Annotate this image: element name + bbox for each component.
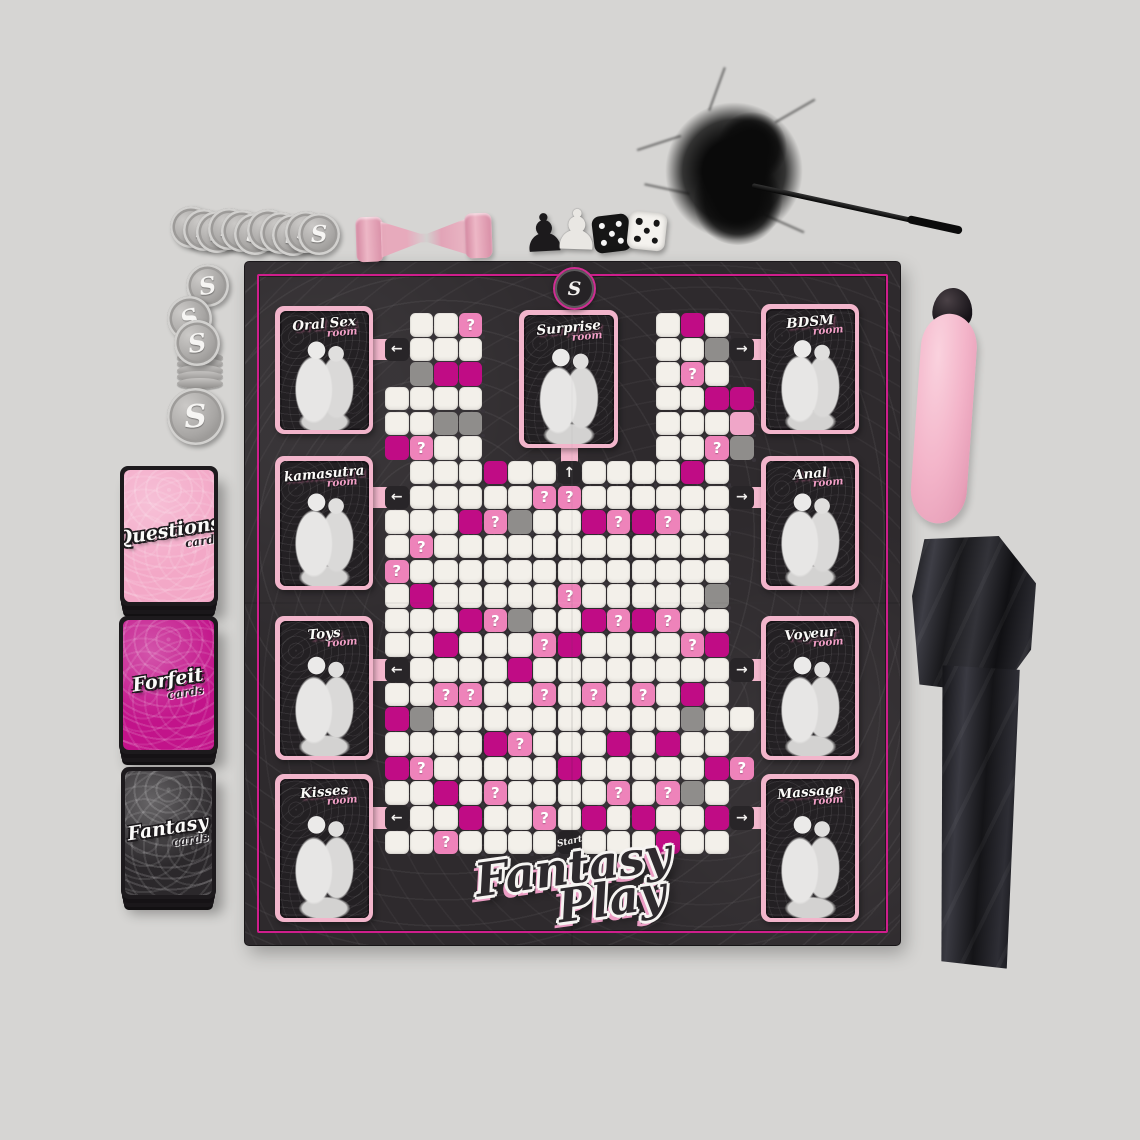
deck-questions: Questionscards: [120, 466, 218, 606]
grid-cell: [434, 757, 458, 781]
grid-cell: [656, 584, 680, 608]
grid-cell: [656, 633, 680, 657]
grid-cell: [632, 584, 656, 608]
token-stack-coin: [177, 378, 223, 389]
grid-cell: [459, 757, 483, 781]
die-pip: [636, 218, 643, 225]
question-cell: ?: [730, 757, 754, 781]
grid-cell: [410, 658, 434, 682]
grid-cell: [410, 387, 434, 411]
arrow-cell: ←: [385, 486, 409, 510]
grid-cell: [434, 486, 458, 510]
grid-cell: [385, 707, 409, 731]
grid-cell: [434, 510, 458, 534]
grid-cell: [607, 732, 631, 756]
grid-cell: [385, 609, 409, 633]
grid-cell: [459, 510, 483, 534]
grid-cell: [656, 461, 680, 485]
grid-cell: [705, 683, 729, 707]
room-card-face: Voyeurroom: [766, 621, 855, 756]
arrow-cell: ←: [385, 658, 409, 682]
grid-cell: [607, 683, 631, 707]
grid-cell: [582, 707, 606, 731]
grid-cell: [582, 633, 606, 657]
hourglass-cap-right: [464, 213, 493, 259]
room-card-face: kamasutraroom: [280, 461, 369, 586]
room-card-surprise: Surpriseroom: [519, 310, 618, 448]
grid-cell: [582, 757, 606, 781]
grid-cell: [632, 486, 656, 510]
grid-cell: [508, 806, 532, 830]
grid-cell: [607, 584, 631, 608]
grid-cell: [385, 757, 409, 781]
grid-cell: [558, 633, 582, 657]
grid-cell: [705, 362, 729, 386]
grid-cell: [410, 633, 434, 657]
grid-cell: [533, 461, 557, 485]
board-fold-horizontal: [245, 602, 900, 604]
grid-cell: [533, 781, 557, 805]
grid-cell: [632, 757, 656, 781]
grid-cell: [656, 338, 680, 362]
deck-back: Questionscards: [124, 470, 214, 602]
grid-cell: [582, 609, 606, 633]
grid-cell: [681, 806, 705, 830]
die-pip: [634, 235, 641, 242]
grid-cell: [656, 560, 680, 584]
question-cell: ?: [607, 510, 631, 534]
grid-cell: [410, 584, 434, 608]
grid-cell: [434, 535, 458, 559]
grid-cell: [632, 510, 656, 534]
grid-cell: [459, 461, 483, 485]
grid-cell: [681, 535, 705, 559]
question-cell: ?: [632, 683, 656, 707]
grid-cell: [607, 806, 631, 830]
scene: S Oral SexroomkamasutraroomToysroomKisse…: [0, 0, 1140, 1140]
deck-label: Questionscards: [124, 511, 214, 560]
question-cell: ?: [484, 609, 508, 633]
grid-cell: [607, 658, 631, 682]
grid-cell: [508, 781, 532, 805]
die-pip: [651, 237, 658, 244]
grid-cell: [484, 683, 508, 707]
room-card-face: Oral Sexroom: [280, 311, 369, 430]
grid-cell: [533, 707, 557, 731]
grid-cell: [434, 732, 458, 756]
question-cell: ?: [533, 633, 557, 657]
feather-tickler-puff: [664, 102, 806, 242]
grid-cell: [681, 584, 705, 608]
question-cell: ?: [484, 510, 508, 534]
grid-cell: [508, 486, 532, 510]
grid-cell: [434, 781, 458, 805]
grid-cell: [730, 707, 754, 731]
room-card-voyeur: Voyeurroom: [761, 616, 859, 760]
grid-cell: [607, 633, 631, 657]
arrow-cell: ←: [385, 338, 409, 362]
token-letter: S: [186, 327, 208, 359]
room-card-massage: Massageroom: [761, 774, 859, 922]
token-letter: S: [310, 220, 328, 248]
grid-cell: [681, 313, 705, 337]
grid-cell: [582, 781, 606, 805]
grid-cell: [434, 461, 458, 485]
grid-cell: [434, 560, 458, 584]
grid-cell: [705, 313, 729, 337]
grid-cell: [705, 732, 729, 756]
grid-cell: [410, 683, 434, 707]
question-cell: ?: [434, 831, 458, 855]
grid-cell: [434, 338, 458, 362]
grid-cell: [656, 757, 680, 781]
grid-cell: [582, 486, 606, 510]
grid-cell: [705, 757, 729, 781]
grid-cell: [484, 707, 508, 731]
grid-cell: [632, 781, 656, 805]
grid-cell: [681, 781, 705, 805]
grid-cell: [632, 732, 656, 756]
grid-cell: [656, 658, 680, 682]
deck-forfeit: Forfeitcards: [119, 616, 218, 754]
grid-cell: [730, 436, 754, 460]
grid-cell: [459, 436, 483, 460]
grid-cell: [632, 461, 656, 485]
grid-cell: [705, 584, 729, 608]
arrow-cell: →: [730, 486, 754, 510]
vibrator: [908, 286, 982, 527]
room-card-bdsm: BDSMroom: [761, 304, 859, 434]
token-letter: S: [197, 270, 219, 301]
grid-cell: [705, 412, 729, 436]
question-cell: ?: [410, 757, 434, 781]
grid-cell: [385, 510, 409, 534]
grid-cell: [434, 707, 458, 731]
grid-cell: [410, 362, 434, 386]
question-cell: ?: [656, 510, 680, 534]
grid-cell: [582, 560, 606, 584]
grid-cell: [410, 560, 434, 584]
grid-cell: [656, 362, 680, 386]
grid-cell: [434, 313, 458, 337]
grid-cell: [705, 831, 729, 855]
game-token: S: [165, 386, 226, 447]
grid-cell: [459, 633, 483, 657]
question-cell: ?: [508, 732, 532, 756]
grid-cell: [558, 757, 582, 781]
question-cell: ?: [558, 584, 582, 608]
grid-cell: [434, 584, 458, 608]
grid-cell: [410, 338, 434, 362]
grid-cell: [681, 387, 705, 411]
grid-cell: [558, 658, 582, 682]
grid-cell: [484, 658, 508, 682]
grid-cell: [681, 510, 705, 534]
grid-cell: [459, 732, 483, 756]
grid-cell: [508, 633, 532, 657]
grid-cell: [508, 560, 532, 584]
grid-cell: [459, 658, 483, 682]
grid-cell: [681, 707, 705, 731]
grid-cell: [582, 658, 606, 682]
question-cell: ?: [681, 362, 705, 386]
grid-cell: [508, 658, 532, 682]
question-cell: ?: [459, 313, 483, 337]
grid-cell: [558, 560, 582, 584]
grid-cell: [705, 486, 729, 510]
room-card-face: Kissesroom: [280, 779, 369, 918]
grid-cell: [730, 387, 754, 411]
grid-cell: [582, 732, 606, 756]
room-card-kisses: Kissesroom: [275, 774, 373, 922]
die-pip: [617, 237, 624, 244]
arrow-cell: ↑: [558, 461, 582, 485]
grid-cell: [508, 707, 532, 731]
grid-cell: [681, 831, 705, 855]
question-cell: ?: [607, 609, 631, 633]
grid-cell: [632, 806, 656, 830]
grid-cell: [607, 535, 631, 559]
grid-cell: [459, 831, 483, 855]
grid-cell: [459, 412, 483, 436]
question-cell: ?: [705, 436, 729, 460]
grid-cell: [434, 436, 458, 460]
grid-cell: [410, 707, 434, 731]
grid-cell: [632, 707, 656, 731]
grid-cell: [410, 461, 434, 485]
question-cell: ?: [582, 683, 606, 707]
grid-cell: [385, 535, 409, 559]
grid-cell: [459, 806, 483, 830]
grid-cell: [459, 584, 483, 608]
grid-cell: [410, 806, 434, 830]
grid-cell: [582, 584, 606, 608]
grid-cell: [459, 609, 483, 633]
board-logo: S: [553, 267, 596, 310]
grid-cell: [705, 535, 729, 559]
hourglass-sand: [380, 219, 467, 258]
grid-cell: [607, 486, 631, 510]
room-card-face: Massageroom: [766, 779, 855, 918]
grid-cell: [656, 313, 680, 337]
grid-cell: [459, 535, 483, 559]
grid-cell: [632, 658, 656, 682]
grid-cell: [558, 781, 582, 805]
grid-cell: [508, 757, 532, 781]
grid-cell: [656, 535, 680, 559]
grid-cell: [656, 683, 680, 707]
grid-cell: [484, 732, 508, 756]
grid-cell: [632, 633, 656, 657]
grid-cell: [681, 560, 705, 584]
grid-cell: [410, 732, 434, 756]
deck-label: Fantasycards: [126, 810, 212, 855]
grid-cell: [533, 560, 557, 584]
board-title-line2: Play: [555, 871, 678, 926]
grid-cell: [385, 436, 409, 460]
question-cell: ?: [533, 683, 557, 707]
grid-cell: [705, 781, 729, 805]
grid-cell: [681, 436, 705, 460]
grid-cell: [410, 510, 434, 534]
grid-cell: [558, 510, 582, 534]
grid-cell: [484, 535, 508, 559]
grid-cell: [484, 757, 508, 781]
grid-cell: [459, 486, 483, 510]
grid-cell: [434, 387, 458, 411]
grid-cell: [705, 338, 729, 362]
grid-cell: [656, 806, 680, 830]
grid-cell: [533, 609, 557, 633]
question-cell: ?: [533, 806, 557, 830]
grid-cell: [459, 362, 483, 386]
room-card-face: BDSMroom: [766, 309, 855, 430]
grid-cell: [484, 584, 508, 608]
grid-cell: [681, 338, 705, 362]
grid-cell: [410, 831, 434, 855]
question-cell: ?: [681, 633, 705, 657]
grid-cell: [434, 658, 458, 682]
grid-cell: [632, 535, 656, 559]
room-card-face: Analroom: [766, 461, 855, 586]
question-cell: ?: [459, 683, 483, 707]
grid-cell: [681, 732, 705, 756]
grid-cell: [385, 732, 409, 756]
die-pip: [615, 221, 622, 228]
question-cell: ?: [533, 486, 557, 510]
grid-cell: [607, 461, 631, 485]
grid-cell: [681, 461, 705, 485]
room-card-face: Toysroom: [280, 621, 369, 756]
grid-cell: [681, 658, 705, 682]
arrow-cell: →: [730, 338, 754, 362]
grid-cell: [558, 806, 582, 830]
grid-cell: [484, 560, 508, 584]
room-card-oral-sex: Oral Sexroom: [275, 306, 373, 434]
question-cell: ?: [410, 436, 434, 460]
grid-cell: [533, 732, 557, 756]
satin-sheen: [933, 665, 1023, 969]
grid-cell: [656, 486, 680, 510]
grid-cell: [705, 633, 729, 657]
hourglass-timer: [355, 210, 493, 267]
board-title: Fantasy Play: [473, 835, 679, 938]
grid-cell: [508, 683, 532, 707]
grid-cell: [385, 412, 409, 436]
grid-cell: [705, 609, 729, 633]
grid-cell: [484, 633, 508, 657]
grid-cell: [533, 584, 557, 608]
grid-cell: [410, 412, 434, 436]
grid-cell: [705, 560, 729, 584]
die-pip: [599, 223, 606, 230]
grid-cell: [508, 584, 532, 608]
grid-cell: [533, 535, 557, 559]
grid-cell: [459, 707, 483, 731]
question-cell: ?: [558, 486, 582, 510]
room-card-anal: Analroom: [761, 456, 859, 590]
grid-cell: [508, 535, 532, 559]
grid-cell: [385, 781, 409, 805]
grid-cell: [681, 757, 705, 781]
grid-cell: [533, 658, 557, 682]
die-pip: [653, 220, 660, 227]
grid-cell: [582, 806, 606, 830]
question-cell: ?: [656, 609, 680, 633]
die-pip: [608, 230, 615, 237]
grid-cell: [705, 707, 729, 731]
die-pip: [601, 239, 608, 246]
grid-cell: [434, 609, 458, 633]
hourglass-cap-left: [355, 216, 384, 262]
arrow-cell: →: [730, 806, 754, 830]
grid-cell: [385, 387, 409, 411]
deck-label: Forfeitcards: [131, 663, 207, 707]
grid-cell: [607, 707, 631, 731]
grid-cell: [459, 781, 483, 805]
grid-cell: [533, 757, 557, 781]
grid-cell: [705, 461, 729, 485]
grid-cell: [385, 633, 409, 657]
grid-cell: [582, 461, 606, 485]
grid-cell: [681, 486, 705, 510]
grid-cell: [508, 510, 532, 534]
die-white-die: [626, 210, 668, 252]
grid-cell: [434, 806, 458, 830]
deck-fantasy: Fantasycards: [121, 767, 216, 899]
room-card-face: Surpriseroom: [524, 315, 614, 444]
grid-cell: [681, 609, 705, 633]
grid-cell: [508, 609, 532, 633]
grid-cell: [385, 584, 409, 608]
deck-back: Forfeitcards: [123, 620, 214, 750]
blindfold-strip: [933, 665, 1023, 969]
arrow-cell: →: [730, 658, 754, 682]
grid-cell: [459, 338, 483, 362]
grid-cell: [558, 535, 582, 559]
die-black-die: [591, 213, 632, 254]
grid-cell: [705, 387, 729, 411]
room-card-toys: Toysroom: [275, 616, 373, 760]
question-cell: ?: [484, 781, 508, 805]
grid-cell: [385, 683, 409, 707]
die-pip: [643, 227, 650, 234]
grid-cell: [434, 362, 458, 386]
product-photo-canvas: { "scene": {"background_color": "#d6d5d3…: [0, 0, 1140, 1140]
grid-cell: [730, 412, 754, 436]
grid-cell: [410, 781, 434, 805]
grid-cell: [607, 560, 631, 584]
grid-cell: [656, 436, 680, 460]
question-cell: ?: [385, 560, 409, 584]
question-cell: ?: [410, 535, 434, 559]
grid-cell: [484, 806, 508, 830]
grid-cell: [410, 609, 434, 633]
grid-cell: [705, 510, 729, 534]
grid-cell: [459, 387, 483, 411]
question-cell: ?: [656, 781, 680, 805]
grid-cell: [385, 831, 409, 855]
grid-cell: [632, 560, 656, 584]
grid-cell: [410, 486, 434, 510]
grid-cell: [459, 560, 483, 584]
grid-cell: [508, 461, 532, 485]
grid-cell: [582, 535, 606, 559]
grid-cell: [582, 510, 606, 534]
grid-cell: [558, 707, 582, 731]
grid-cell: [410, 313, 434, 337]
grid-cell: [533, 510, 557, 534]
